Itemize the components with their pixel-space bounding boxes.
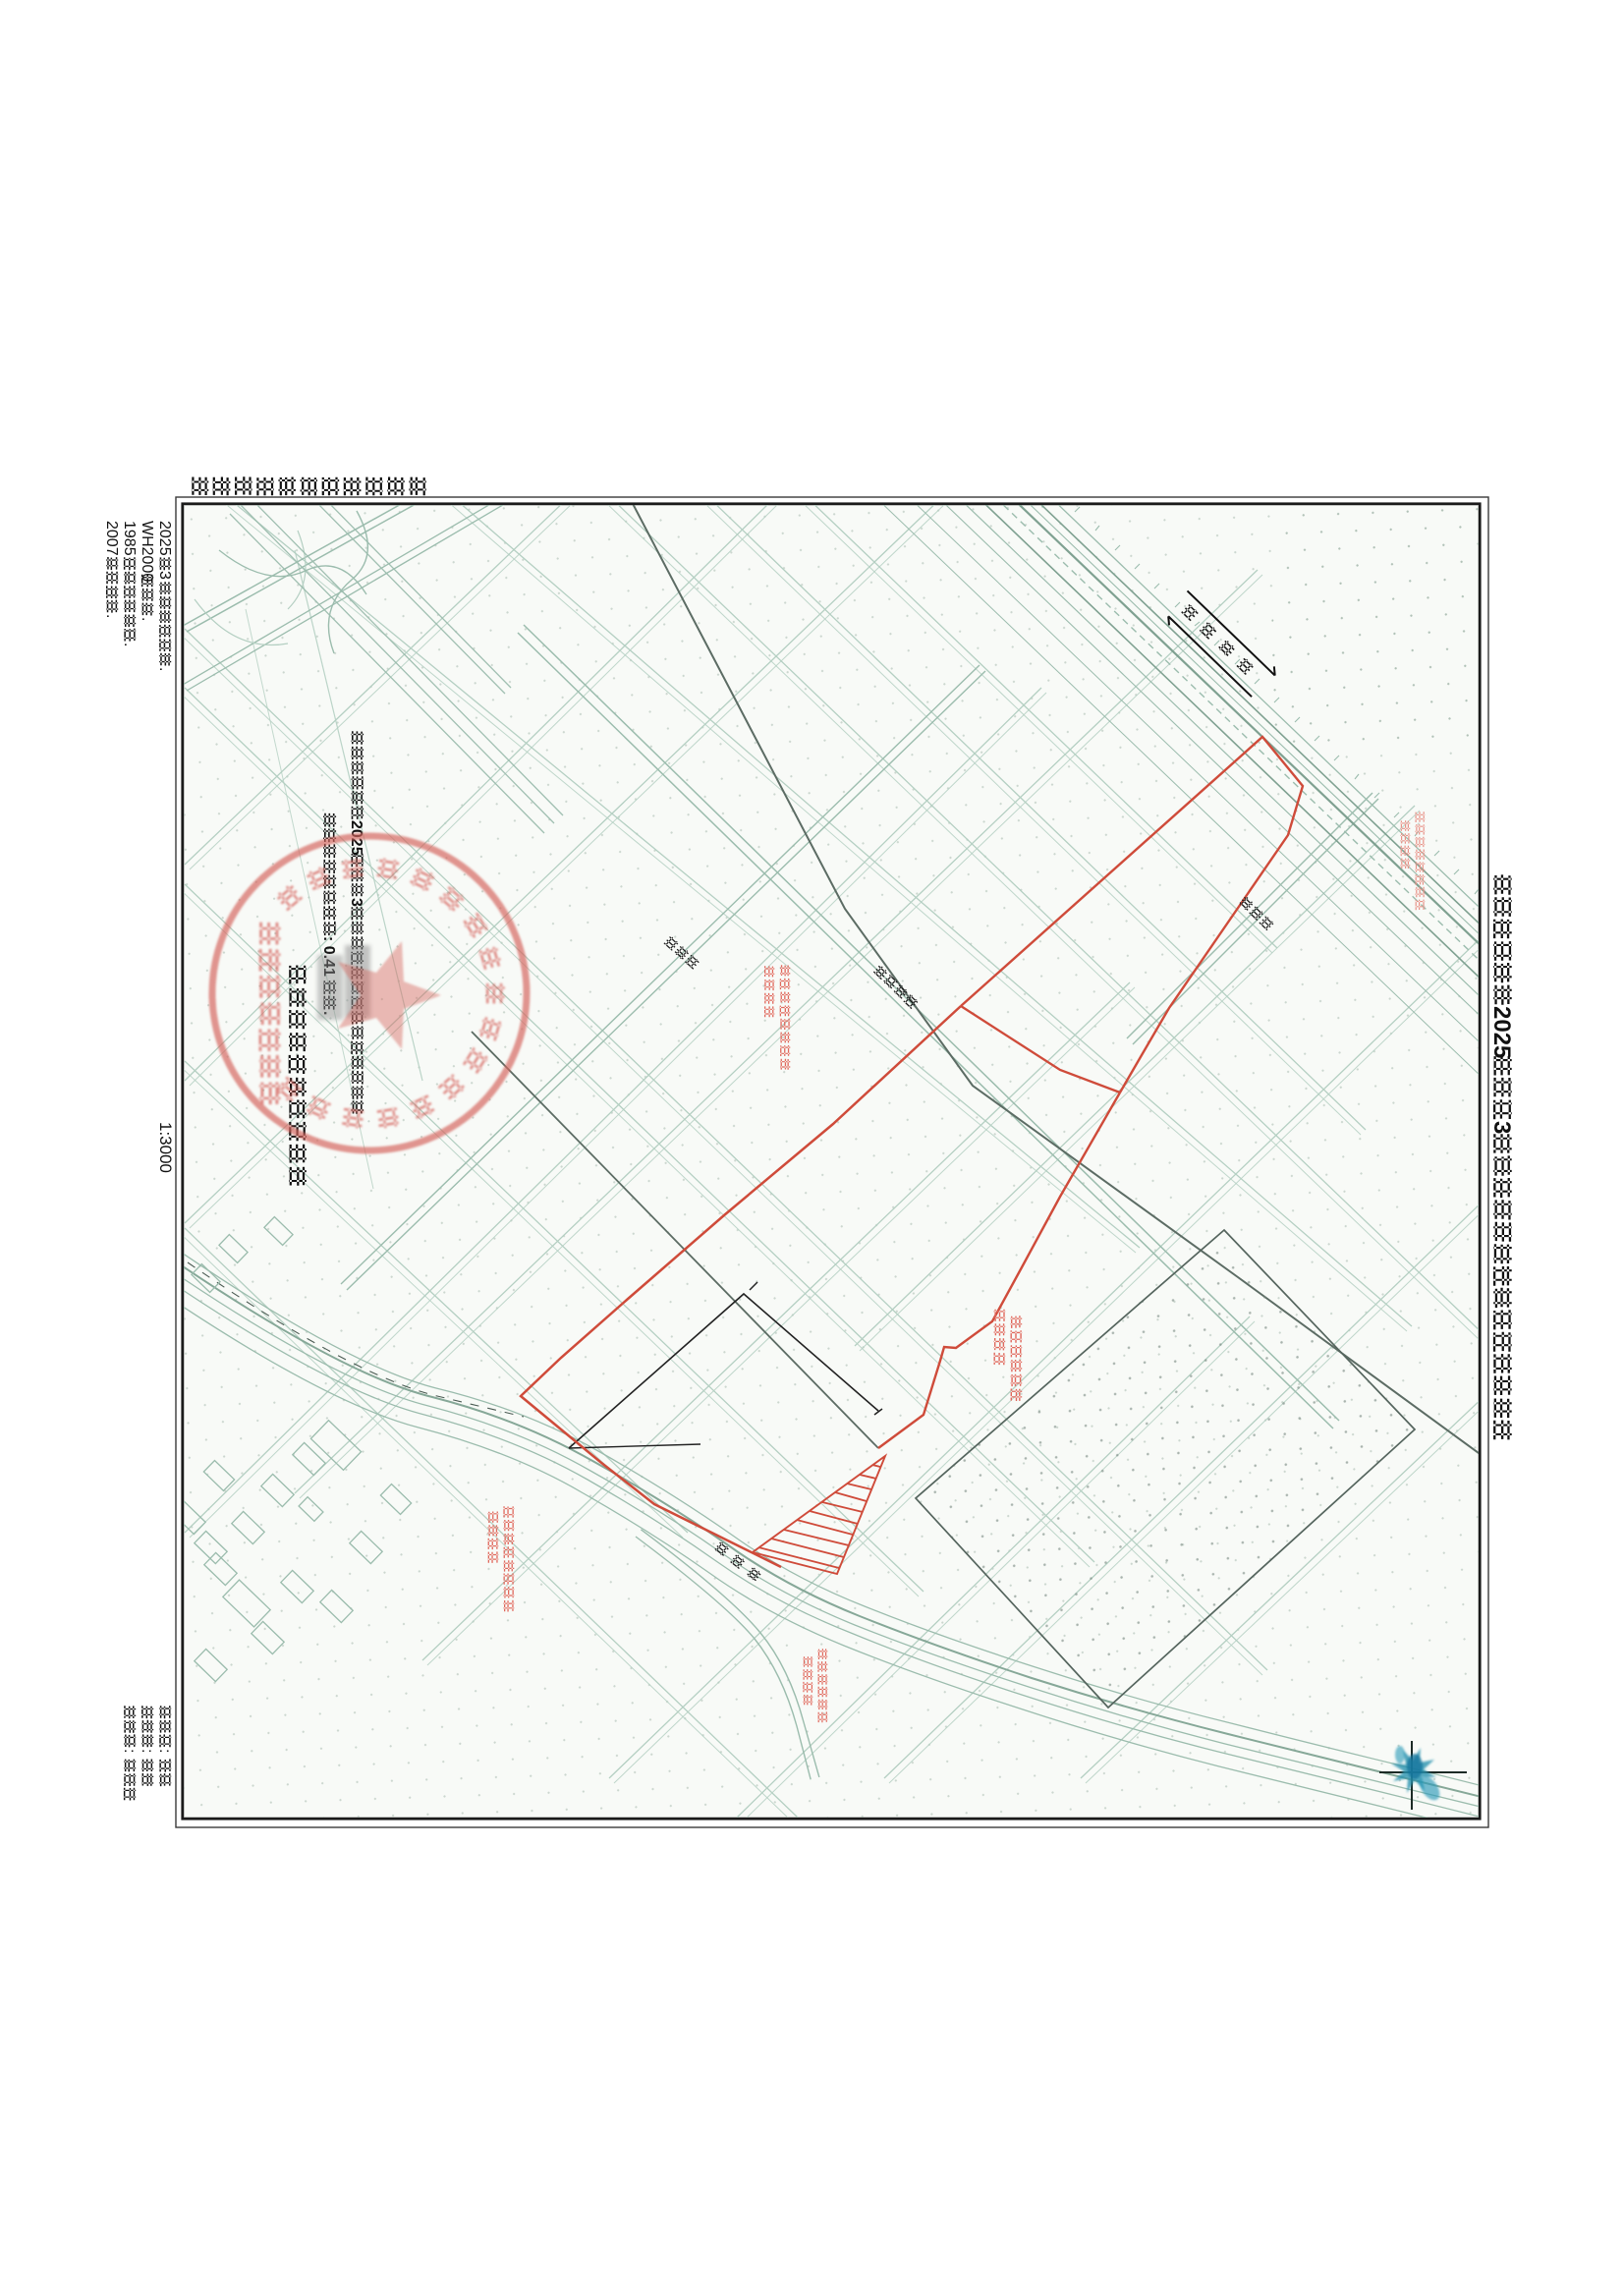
- svg-text:2007: 2007: [103, 521, 120, 556]
- svg-text:.: .: [103, 614, 120, 618]
- svg-text:2025: 2025: [1488, 1006, 1515, 1058]
- svg-text:.: .: [156, 667, 173, 671]
- svg-text:3: 3: [156, 571, 173, 580]
- svg-text:3: 3: [348, 898, 364, 907]
- svg-text:1:3000: 1:3000: [156, 1122, 175, 1173]
- svg-text:WH2000: WH2000: [139, 521, 155, 582]
- svg-text::: :: [121, 1749, 138, 1753]
- svg-text:.: .: [121, 643, 138, 646]
- svg-text:3: 3: [1488, 1121, 1515, 1134]
- svg-text:2025: 2025: [156, 521, 173, 556]
- svg-text::: :: [139, 1749, 155, 1753]
- svg-text:.: .: [139, 617, 155, 621]
- svg-text:1985: 1985: [121, 521, 138, 556]
- svg-text::: :: [156, 1749, 173, 1753]
